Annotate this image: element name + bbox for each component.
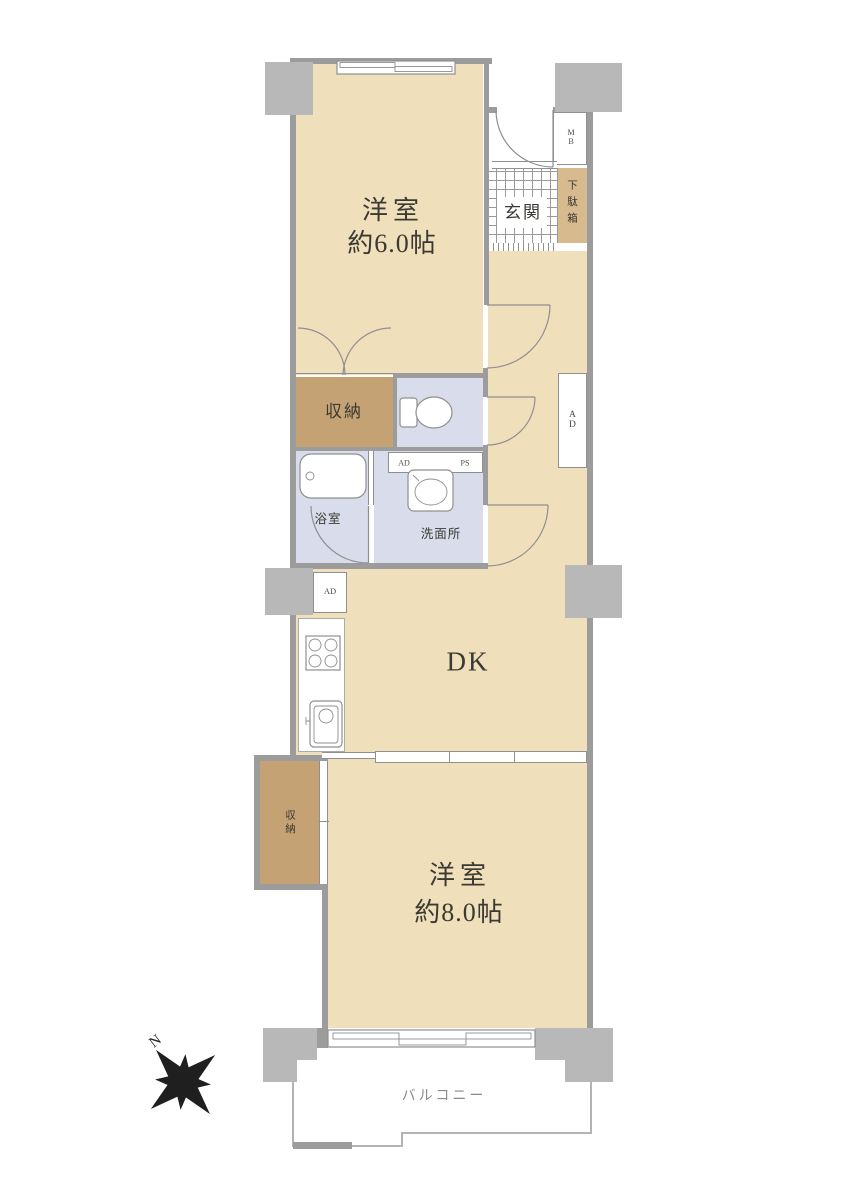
room6-name-label: 洋室 — [362, 196, 424, 226]
pillar-top-right — [555, 63, 622, 112]
compass-north-label: N — [146, 1032, 165, 1052]
wall-left — [290, 64, 296, 755]
balcony-partition — [293, 1142, 352, 1149]
storage-upper-label: 収納 — [325, 402, 363, 422]
balcony-label: バルコニー — [402, 1089, 487, 1105]
wall-hall-b — [483, 445, 488, 505]
compass-star-main — [124, 1023, 242, 1141]
entrance-step-edge — [488, 243, 557, 251]
entrance-threshold — [492, 161, 557, 169]
wall-storage-lower-top — [254, 755, 322, 761]
washroom-label: 洗面所 — [421, 527, 462, 541]
entrance-door — [496, 110, 553, 167]
bathroom-floor — [296, 451, 368, 563]
window-bottom — [328, 1030, 535, 1047]
wall-wet-bottom — [296, 563, 488, 569]
floor-plan: 洋室 約6.0帖 洋室 約8.0帖 DK 玄関 下駄箱 MB 収納 収納 浴室 … — [0, 0, 847, 1200]
pillar-mid-left — [265, 568, 313, 615]
bathroom-label: 浴室 — [314, 512, 341, 526]
wall-top — [290, 58, 492, 64]
room6-size-label: 約6.0帖 — [347, 229, 437, 259]
dk-label: DK — [447, 646, 490, 677]
pillar-mid-right — [565, 565, 622, 618]
kitchen-counter — [298, 618, 345, 752]
wall-entrance-top-a — [489, 107, 497, 113]
wall-storage-toilet — [393, 377, 397, 450]
storage-lower-label: 収納 — [283, 810, 295, 837]
partition-tick-1 — [449, 751, 450, 763]
wall-bath-washroom — [368, 451, 374, 505]
pillar-bottom-left-a — [263, 1028, 317, 1060]
entrance-label: 玄関 — [504, 203, 542, 223]
sliding-partition-dk-room8 — [375, 751, 587, 763]
wall-hall-a — [483, 368, 488, 397]
hall-ad-label: AD — [567, 410, 578, 430]
pillar-bottom-left-b — [263, 1060, 297, 1082]
compass-star-diagonal — [153, 1052, 214, 1113]
shoe-cabinet-label: 下駄箱 — [565, 179, 577, 229]
pillar-bottom-right-b — [565, 1060, 613, 1082]
pillar-top-left — [265, 62, 313, 115]
room8-name-label: 洋室 — [429, 861, 491, 891]
strip-ps-label: PS — [461, 458, 470, 467]
strip-ad-label: AD — [398, 458, 410, 467]
wall-entrance-left — [484, 58, 489, 305]
window-bottom-sash-2 — [399, 1039, 466, 1045]
window-bottom-sash-1 — [333, 1033, 399, 1039]
compass-rose — [124, 1023, 242, 1141]
meter-box-label: MB — [566, 128, 575, 146]
room8-size-label: 約8.0帖 — [414, 898, 504, 928]
partition-stub — [322, 752, 378, 759]
storage-upper-door-line — [296, 373, 393, 374]
window-bottom-sash-3 — [466, 1033, 531, 1039]
toilet-room-floor — [397, 378, 483, 450]
pillar-bottom-right-a — [535, 1028, 613, 1060]
partition-tick-2 — [514, 751, 515, 763]
room-western8-floor — [328, 755, 587, 1028]
kitchen-ad-label: AD — [324, 587, 336, 597]
sliding-door-tick — [318, 821, 329, 822]
wall-toilet-top — [393, 373, 483, 378]
sliding-door-storage-lower — [319, 761, 328, 884]
wall-wet-mid — [296, 447, 483, 451]
wall-storage-lower-left — [254, 755, 260, 890]
wall-storage-lower-bottom — [254, 884, 322, 890]
